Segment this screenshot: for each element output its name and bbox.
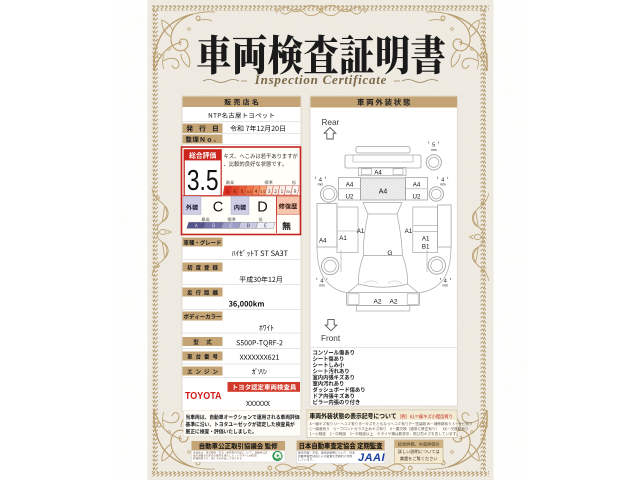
svg-text:A2: A2: [373, 299, 381, 306]
svg-text:JAAI: JAAI: [358, 452, 386, 464]
svg-text:A4: A4: [319, 238, 327, 245]
svg-text:3.5: 3.5: [187, 166, 219, 197]
svg-text:A1: A1: [405, 228, 413, 235]
svg-text:A1: A1: [339, 235, 347, 242]
svg-text:A1: A1: [422, 236, 430, 243]
svg-text:Rear: Rear: [322, 118, 340, 127]
svg-text:Front: Front: [321, 334, 341, 343]
svg-text:A4: A4: [413, 182, 421, 189]
svg-text:TOYOTA: TOYOTA: [185, 391, 222, 402]
svg-text:Inspection Certificate: Inspection Certificate: [254, 72, 387, 87]
svg-text:mm: mm: [318, 182, 324, 186]
svg-text:U2: U2: [346, 193, 354, 200]
svg-text:mm: mm: [319, 283, 325, 287]
svg-text:D: D: [257, 200, 267, 216]
svg-text:B1: B1: [422, 244, 430, 251]
svg-text:mm: mm: [440, 182, 446, 186]
svg-text:A4: A4: [374, 170, 382, 177]
svg-text:A1: A1: [357, 228, 365, 235]
svg-text:mm: mm: [442, 283, 448, 287]
svg-text:U2: U2: [413, 193, 421, 200]
svg-text:A4: A4: [379, 188, 388, 195]
svg-text:C: C: [213, 200, 223, 216]
svg-text:A2: A2: [389, 299, 397, 306]
svg-text:mm: mm: [431, 148, 437, 152]
svg-text:A4: A4: [346, 182, 354, 189]
